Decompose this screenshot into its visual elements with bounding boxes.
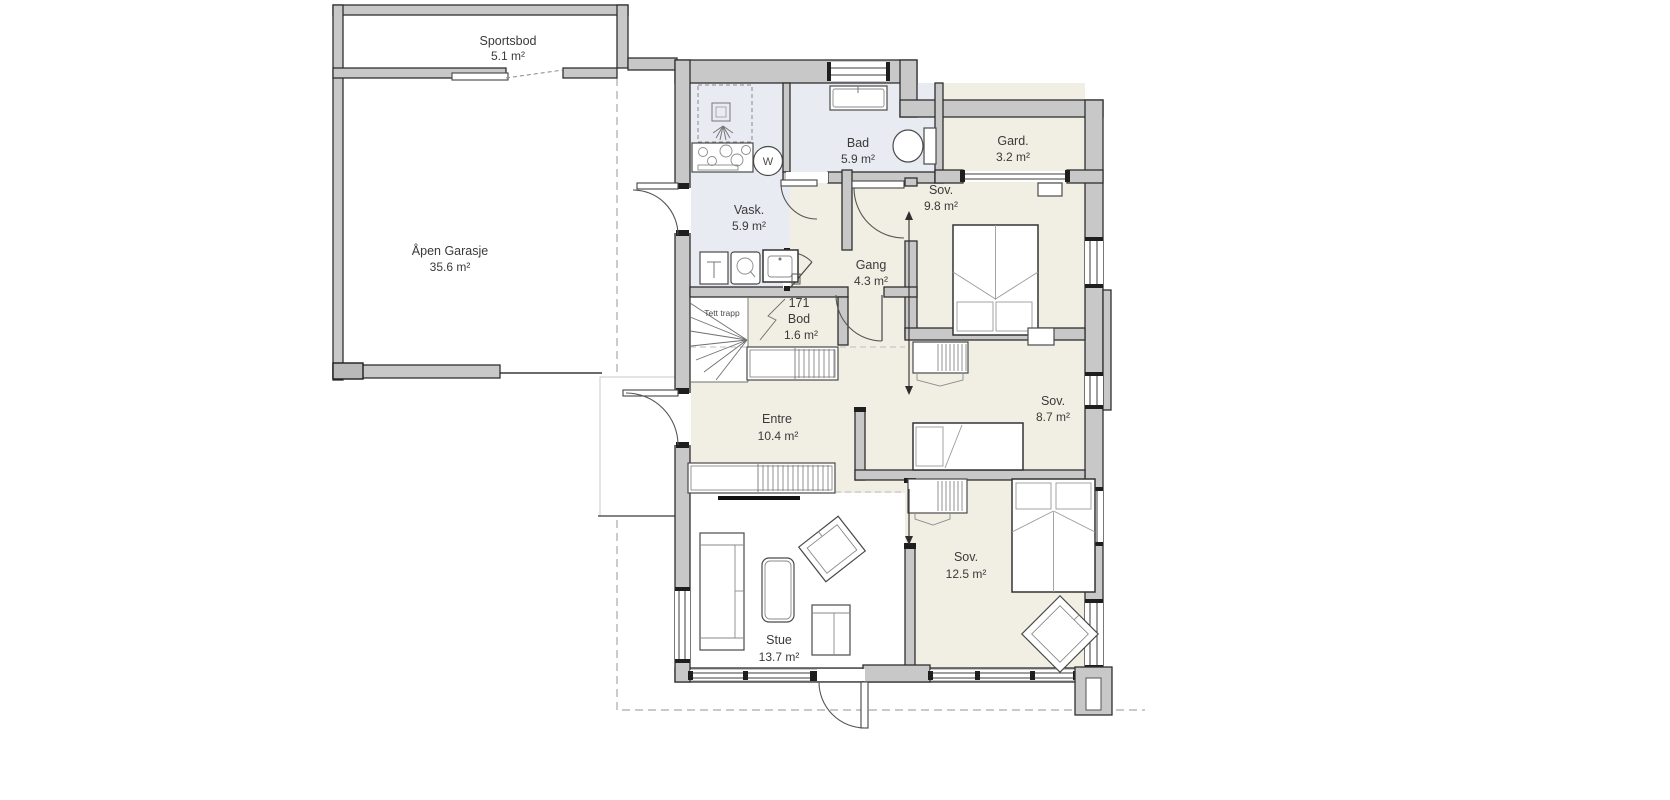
label-garage-name: Åpen Garasje (412, 243, 488, 258)
window-sov-midt-east (1085, 372, 1103, 409)
label-bod-name: Bod (788, 312, 810, 326)
label-entre-name: Entre (762, 412, 792, 426)
label-vask-name: Vask. (734, 203, 764, 217)
label-vask-area: 5.9 m² (732, 219, 766, 233)
label-bod-number: 171 (789, 296, 810, 310)
label-bod-area: 1.6 m² (784, 328, 818, 342)
label-sportsbod-area: 5.1 m² (491, 49, 525, 63)
label-bad-area: 5.9 m² (841, 152, 875, 166)
bed-sov-sor (1012, 479, 1095, 592)
label-tett-trapp: Tett trapp (704, 308, 740, 318)
label-stue-name: Stue (766, 633, 792, 647)
sportsbod-sliding-door-leaf (452, 73, 508, 80)
bathtub (830, 86, 887, 110)
opening-gard (960, 170, 1070, 182)
closet-entre-stair (747, 347, 838, 380)
coffee-table-stue (762, 558, 794, 622)
washing-machine-letter: W (763, 156, 774, 168)
bed-sov-midt (913, 423, 1023, 470)
floorplan-drawing: W (0, 0, 1670, 800)
laundry-appliances (700, 250, 800, 284)
bed-sov-nord (953, 225, 1038, 335)
sofa-stue (700, 533, 744, 650)
label-sov-midt-area: 8.7 m² (1036, 410, 1070, 424)
laundry-sink-counter (692, 143, 753, 172)
label-gang-name: Gang (856, 258, 887, 272)
window-sov-sor-south (928, 670, 1078, 680)
toilet (893, 128, 936, 164)
label-sov-nord-area: 9.8 m² (924, 199, 958, 213)
chair-stue-south (812, 605, 850, 655)
label-sov-sor-area: 12.5 m² (946, 567, 987, 581)
label-sov-midt-name: Sov. (1041, 394, 1065, 408)
shelf-sov-midt (1028, 328, 1054, 345)
label-garage-area: 35.6 m² (430, 260, 471, 274)
window-stue-west (675, 587, 690, 663)
label-sov-nord-name: Sov. (929, 183, 953, 197)
label-stue-area: 13.7 m² (759, 650, 800, 664)
label-sportsbod-name: Sportsbod (480, 34, 537, 48)
window-sov-nord-east (1085, 237, 1103, 288)
window-stue-south (688, 670, 817, 681)
tv-bench-line (718, 496, 800, 500)
label-bad-name: Bad (847, 136, 869, 150)
label-sov-sor-name: Sov. (954, 550, 978, 564)
label-gard-area: 3.2 m² (996, 150, 1030, 164)
window-bad-north (827, 62, 890, 81)
label-entre-area: 10.4 m² (758, 429, 799, 443)
chimney (1075, 667, 1112, 715)
label-gang-area: 4.3 m² (854, 274, 888, 288)
washing-machine: W (754, 147, 783, 176)
shelf-sov-nord (1038, 183, 1062, 196)
floorplan-page: W (0, 0, 1670, 800)
label-gard-name: Gard. (997, 134, 1028, 148)
